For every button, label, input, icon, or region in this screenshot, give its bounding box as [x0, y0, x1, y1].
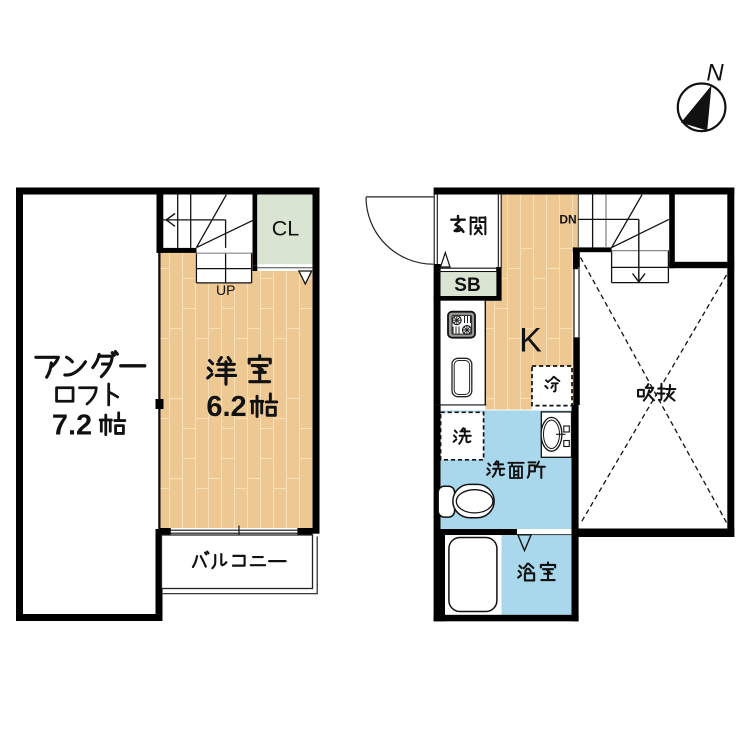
svg-text:CL: CL	[272, 217, 300, 241]
svg-text:6.2: 6.2	[206, 391, 246, 423]
svg-text:UP: UP	[216, 282, 235, 298]
svg-text:K: K	[519, 322, 542, 360]
svg-text:7.2: 7.2	[52, 410, 92, 442]
svg-text:DN: DN	[559, 213, 576, 227]
svg-text:N: N	[706, 60, 724, 87]
svg-text:SB: SB	[454, 275, 480, 296]
